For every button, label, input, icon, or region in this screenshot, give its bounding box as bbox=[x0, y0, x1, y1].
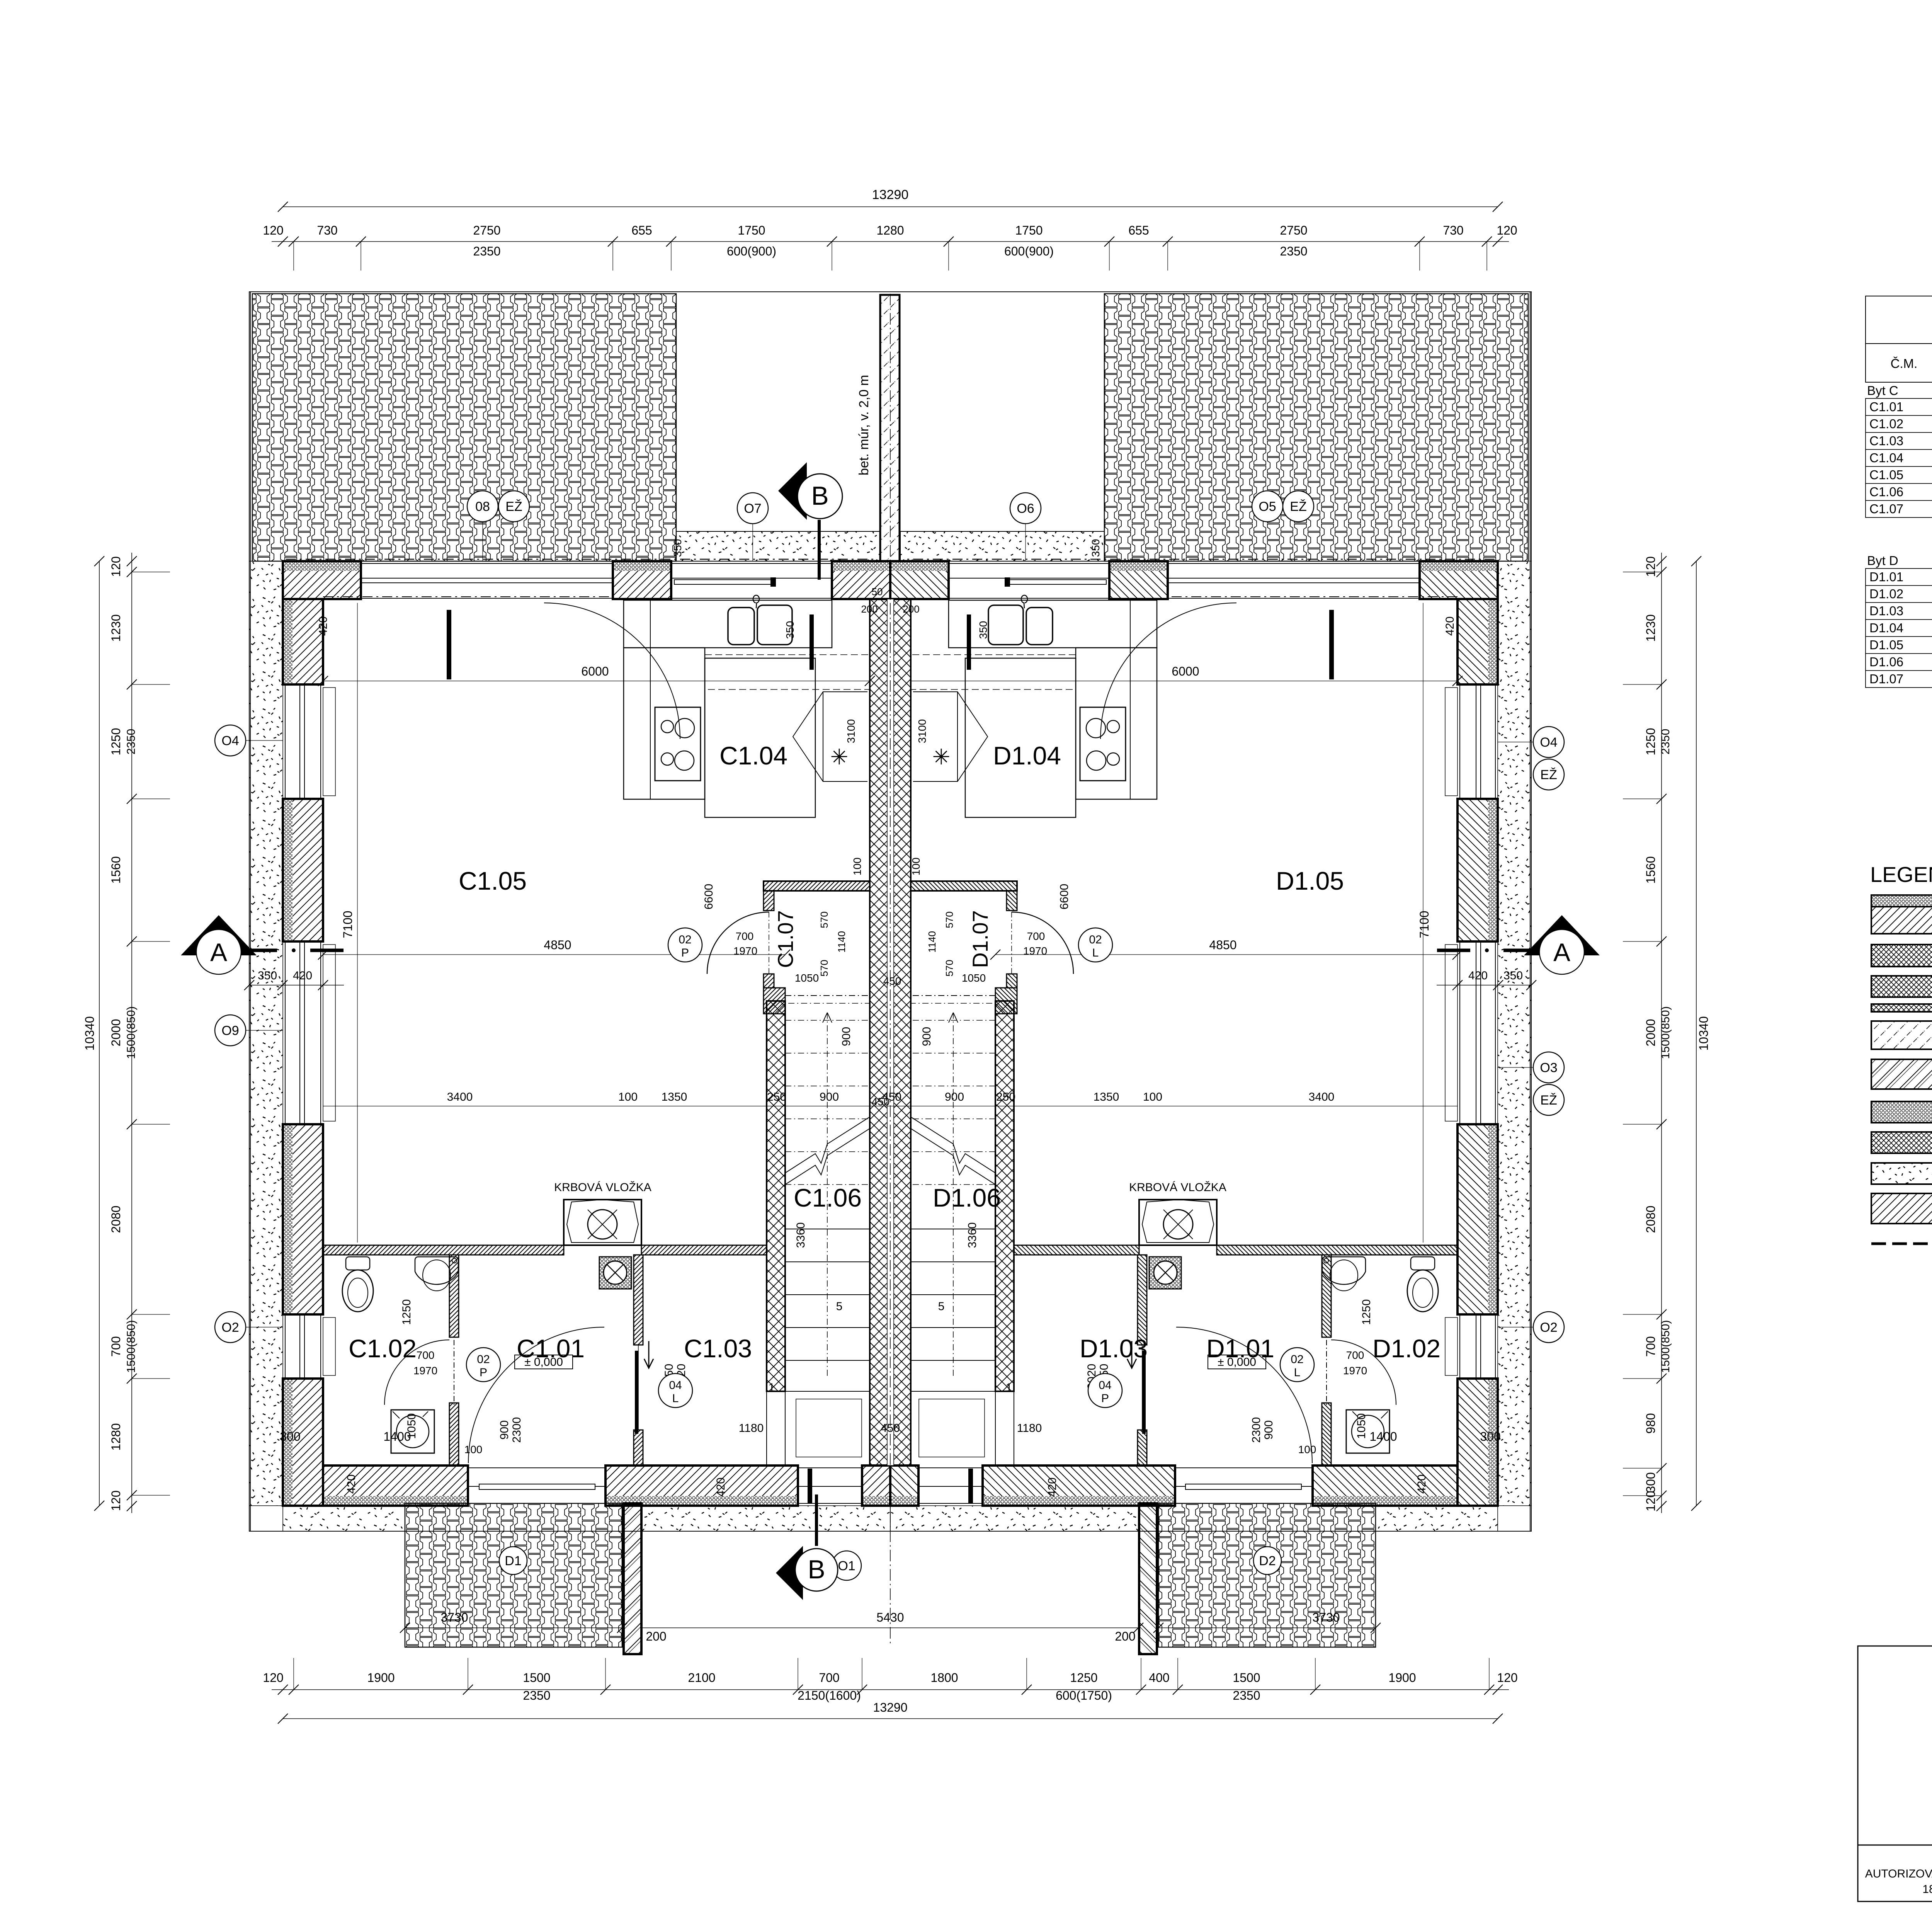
svg-text:D1.07: D1.07 bbox=[968, 910, 992, 968]
svg-text:420: 420 bbox=[1046, 1477, 1059, 1497]
svg-text:C1.03: C1.03 bbox=[1869, 434, 1903, 448]
svg-text:655: 655 bbox=[631, 223, 652, 237]
svg-text:1500: 1500 bbox=[523, 1671, 550, 1685]
svg-text:120: 120 bbox=[1644, 1491, 1658, 1511]
svg-text:C1.05: C1.05 bbox=[459, 866, 527, 895]
svg-text:100: 100 bbox=[851, 858, 863, 876]
svg-text:350: 350 bbox=[1090, 539, 1102, 557]
svg-text:700: 700 bbox=[736, 930, 754, 942]
svg-text:KRBOVÁ VLOŽKA: KRBOVÁ VLOŽKA bbox=[1129, 1181, 1226, 1194]
svg-text:1050: 1050 bbox=[795, 972, 819, 984]
svg-text:5: 5 bbox=[938, 1300, 945, 1313]
svg-text:10340: 10340 bbox=[1697, 1016, 1711, 1051]
svg-text:KRBOVÁ VLOŽKA: KRBOVÁ VLOŽKA bbox=[554, 1181, 651, 1194]
svg-text:1180: 1180 bbox=[1017, 1422, 1042, 1435]
svg-text:1750: 1750 bbox=[738, 223, 765, 237]
svg-text:B: B bbox=[808, 1555, 825, 1584]
svg-text:1970: 1970 bbox=[1343, 1365, 1367, 1377]
svg-text:600(900): 600(900) bbox=[1004, 244, 1054, 258]
svg-text:1800: 1800 bbox=[930, 1671, 958, 1685]
svg-text:C1.01: C1.01 bbox=[1869, 400, 1903, 414]
svg-text:1050: 1050 bbox=[962, 972, 986, 984]
svg-text:C1.06: C1.06 bbox=[794, 1183, 862, 1212]
svg-text:120: 120 bbox=[263, 1671, 283, 1685]
svg-text:1970: 1970 bbox=[413, 1365, 437, 1377]
svg-text:420: 420 bbox=[293, 969, 312, 982]
svg-text:3100: 3100 bbox=[845, 719, 857, 743]
svg-text:730: 730 bbox=[1443, 223, 1463, 237]
svg-text:D1.02: D1.02 bbox=[1869, 587, 1903, 601]
svg-text:700: 700 bbox=[1346, 1349, 1364, 1361]
svg-text:O9: O9 bbox=[221, 1023, 239, 1038]
svg-text:3400: 3400 bbox=[447, 1091, 473, 1103]
svg-text:120: 120 bbox=[1497, 223, 1517, 237]
svg-text:7100: 7100 bbox=[341, 911, 355, 938]
svg-text:D1: D1 bbox=[505, 1554, 521, 1568]
svg-text:1560: 1560 bbox=[1644, 856, 1658, 883]
svg-text:450: 450 bbox=[881, 1422, 900, 1435]
svg-text:D1.03: D1.03 bbox=[1869, 604, 1903, 618]
svg-text:300: 300 bbox=[1480, 1430, 1500, 1443]
svg-text:1900: 1900 bbox=[367, 1671, 395, 1685]
svg-text:D1.04: D1.04 bbox=[993, 741, 1061, 770]
svg-text:450: 450 bbox=[872, 1096, 890, 1108]
svg-text:02: 02 bbox=[1089, 933, 1102, 946]
svg-text:3730: 3730 bbox=[440, 1610, 468, 1624]
svg-text:100: 100 bbox=[1143, 1091, 1162, 1103]
svg-text:2080: 2080 bbox=[1644, 1205, 1658, 1233]
svg-text:EŽ: EŽ bbox=[505, 499, 522, 514]
svg-text:O4: O4 bbox=[221, 734, 239, 748]
svg-text:100: 100 bbox=[618, 1091, 638, 1103]
svg-text:08: 08 bbox=[475, 499, 490, 514]
svg-text:570: 570 bbox=[944, 960, 955, 976]
svg-text:1750: 1750 bbox=[1015, 223, 1043, 237]
svg-text:L: L bbox=[1092, 946, 1099, 959]
svg-text:450: 450 bbox=[883, 975, 901, 987]
svg-text:2350: 2350 bbox=[1233, 1689, 1260, 1702]
svg-text:700: 700 bbox=[1644, 1336, 1658, 1357]
svg-text:Byt D: Byt D bbox=[1867, 553, 1898, 568]
svg-text:2350: 2350 bbox=[125, 729, 138, 755]
svg-text:200: 200 bbox=[646, 1629, 666, 1643]
svg-text:300: 300 bbox=[280, 1430, 300, 1443]
svg-text:3100: 3100 bbox=[916, 719, 928, 743]
svg-text:3400: 3400 bbox=[1309, 1091, 1335, 1103]
svg-text:1140: 1140 bbox=[836, 931, 847, 953]
svg-text:250: 250 bbox=[996, 1091, 1015, 1103]
svg-text:D1.03: D1.03 bbox=[1080, 1334, 1148, 1363]
svg-text:5: 5 bbox=[836, 1300, 843, 1313]
svg-text:900: 900 bbox=[945, 1091, 964, 1103]
svg-text:420: 420 bbox=[317, 616, 330, 636]
svg-text:04: 04 bbox=[669, 1379, 682, 1392]
svg-text:120: 120 bbox=[109, 1490, 123, 1511]
svg-text:O5: O5 bbox=[1259, 499, 1276, 514]
svg-text:350: 350 bbox=[672, 539, 684, 557]
svg-text:LEGENDA MATERIÁLOV: LEGENDA MATERIÁLOV bbox=[1870, 862, 1932, 887]
svg-text:6000: 6000 bbox=[581, 664, 609, 678]
svg-text:420: 420 bbox=[1444, 616, 1456, 636]
svg-text:1: 1 bbox=[769, 1381, 775, 1394]
svg-text:04: 04 bbox=[1099, 1379, 1111, 1392]
svg-text:O3: O3 bbox=[1540, 1060, 1557, 1075]
svg-text:900: 900 bbox=[840, 1027, 853, 1046]
svg-text:1560: 1560 bbox=[109, 856, 123, 883]
svg-text:700: 700 bbox=[1027, 930, 1045, 942]
svg-text:1: 1 bbox=[1006, 1381, 1012, 1394]
svg-text:D1.05: D1.05 bbox=[1869, 638, 1903, 652]
svg-text:1050: 1050 bbox=[405, 1413, 418, 1439]
svg-text:1250: 1250 bbox=[1070, 1671, 1097, 1685]
svg-text:700: 700 bbox=[819, 1671, 839, 1685]
svg-text:2350: 2350 bbox=[1280, 244, 1307, 258]
svg-text:7100: 7100 bbox=[1417, 911, 1431, 938]
svg-text:3360: 3360 bbox=[966, 1222, 979, 1248]
svg-text:EŽ: EŽ bbox=[1290, 499, 1306, 514]
svg-text:D2: D2 bbox=[1259, 1554, 1276, 1568]
svg-text:350: 350 bbox=[258, 969, 277, 982]
svg-text:P: P bbox=[480, 1366, 487, 1379]
svg-text:1250: 1250 bbox=[1360, 1299, 1373, 1325]
svg-text:570: 570 bbox=[944, 911, 955, 928]
svg-text:100: 100 bbox=[1298, 1443, 1316, 1455]
svg-text:D1.02: D1.02 bbox=[1372, 1334, 1440, 1363]
svg-text:200: 200 bbox=[1115, 1629, 1135, 1643]
svg-text:120: 120 bbox=[263, 223, 283, 237]
svg-text:4850: 4850 bbox=[544, 938, 571, 952]
svg-text:655: 655 bbox=[1128, 223, 1149, 237]
svg-text:C1.02: C1.02 bbox=[349, 1334, 417, 1363]
svg-text:C1.07: C1.07 bbox=[773, 910, 798, 968]
svg-text:120: 120 bbox=[1497, 1671, 1517, 1685]
svg-text:A: A bbox=[1553, 938, 1570, 967]
svg-text:250: 250 bbox=[767, 1091, 786, 1103]
svg-text:A: A bbox=[210, 938, 227, 967]
svg-text:570: 570 bbox=[818, 960, 830, 976]
svg-text:1500(850): 1500(850) bbox=[1659, 1320, 1672, 1373]
svg-text:600(1750): 600(1750) bbox=[1056, 1689, 1112, 1702]
svg-text:1180: 1180 bbox=[739, 1422, 764, 1435]
svg-text:C1.06: C1.06 bbox=[1869, 485, 1903, 499]
svg-text:570: 570 bbox=[818, 911, 830, 928]
svg-text:bet. múr, v. 2,0 m: bet. múr, v. 2,0 m bbox=[857, 375, 871, 475]
svg-text:2000: 2000 bbox=[109, 1019, 123, 1046]
svg-text:980: 980 bbox=[1644, 1413, 1658, 1433]
svg-text:300: 300 bbox=[1644, 1472, 1658, 1493]
svg-text:2150(1600): 2150(1600) bbox=[798, 1689, 861, 1702]
svg-text:C1.05: C1.05 bbox=[1869, 468, 1903, 482]
svg-text:900: 900 bbox=[1262, 1420, 1275, 1440]
svg-text:1230: 1230 bbox=[109, 614, 123, 642]
svg-text:C1.04: C1.04 bbox=[1869, 451, 1903, 465]
svg-text:1230: 1230 bbox=[1644, 614, 1658, 642]
svg-text:1500(850): 1500(850) bbox=[125, 1320, 138, 1373]
svg-text:2750: 2750 bbox=[1280, 223, 1307, 237]
svg-text:Č.M.: Č.M. bbox=[1891, 356, 1918, 371]
svg-text:O7: O7 bbox=[744, 501, 761, 516]
svg-text:1350: 1350 bbox=[1094, 1091, 1119, 1103]
svg-text:1140: 1140 bbox=[926, 931, 938, 953]
svg-text:350: 350 bbox=[784, 621, 796, 639]
svg-text:EŽ: EŽ bbox=[1540, 1093, 1557, 1108]
svg-text:AUTORIZOVANÝ ARCHITEKT: AUTORIZOVANÝ ARCHITEKT bbox=[1865, 1867, 1932, 1880]
svg-text:1810 AA: 1810 AA bbox=[1922, 1883, 1932, 1896]
svg-text:2100: 2100 bbox=[688, 1671, 715, 1685]
svg-text:600(900): 600(900) bbox=[727, 244, 776, 258]
svg-text:± 0,000: ± 0,000 bbox=[1218, 1356, 1256, 1369]
svg-text:6000: 6000 bbox=[1172, 664, 1199, 678]
svg-text:1250: 1250 bbox=[1644, 728, 1658, 755]
svg-text:420: 420 bbox=[714, 1477, 727, 1497]
svg-text:700: 700 bbox=[109, 1336, 123, 1357]
svg-text:700: 700 bbox=[417, 1349, 435, 1361]
svg-text:2350: 2350 bbox=[523, 1689, 550, 1702]
svg-text:P: P bbox=[681, 946, 689, 959]
svg-text:420: 420 bbox=[1468, 969, 1488, 982]
svg-text:5430: 5430 bbox=[876, 1610, 904, 1624]
svg-text:350: 350 bbox=[977, 621, 989, 639]
svg-text:10340: 10340 bbox=[83, 1016, 97, 1051]
svg-text:13290: 13290 bbox=[873, 1700, 908, 1714]
svg-text:C1.04: C1.04 bbox=[719, 741, 787, 770]
svg-text:900: 900 bbox=[920, 1027, 933, 1046]
svg-text:2080: 2080 bbox=[109, 1205, 123, 1233]
svg-text:O6: O6 bbox=[1017, 501, 1034, 516]
svg-text:D1.06: D1.06 bbox=[1869, 655, 1903, 669]
svg-text:1500(850): 1500(850) bbox=[1659, 1006, 1672, 1059]
svg-text:4850: 4850 bbox=[1209, 938, 1236, 952]
svg-text:D1.06: D1.06 bbox=[933, 1183, 1001, 1212]
svg-text:1050: 1050 bbox=[1355, 1413, 1368, 1439]
svg-text:Byt C: Byt C bbox=[1867, 383, 1898, 398]
svg-text:O4: O4 bbox=[1540, 735, 1557, 750]
svg-text:C1.03: C1.03 bbox=[684, 1334, 752, 1363]
svg-text:2350: 2350 bbox=[1659, 729, 1672, 755]
svg-text:O2: O2 bbox=[221, 1320, 239, 1335]
svg-text:200: 200 bbox=[861, 603, 878, 615]
svg-text:1350: 1350 bbox=[662, 1091, 687, 1103]
svg-text:100: 100 bbox=[464, 1443, 483, 1455]
svg-text:C1.02: C1.02 bbox=[1869, 417, 1903, 431]
svg-text:6600: 6600 bbox=[702, 884, 715, 910]
svg-text:D1.07: D1.07 bbox=[1869, 672, 1903, 686]
svg-text:02: 02 bbox=[477, 1353, 490, 1366]
svg-text:1280: 1280 bbox=[109, 1423, 123, 1450]
svg-text:D1.05: D1.05 bbox=[1276, 866, 1344, 895]
svg-text:1500: 1500 bbox=[1233, 1671, 1260, 1685]
svg-text:50: 50 bbox=[872, 586, 883, 597]
svg-text:1900: 1900 bbox=[1388, 1671, 1416, 1685]
svg-text:1280: 1280 bbox=[876, 223, 904, 237]
svg-text:D1.01: D1.01 bbox=[1869, 570, 1903, 584]
svg-text:1970: 1970 bbox=[733, 945, 757, 957]
svg-text:200: 200 bbox=[903, 603, 919, 615]
svg-text:O1: O1 bbox=[838, 1559, 855, 1573]
svg-text:420: 420 bbox=[1415, 1474, 1428, 1494]
svg-text:6600: 6600 bbox=[1058, 884, 1071, 910]
svg-text:✳: ✳ bbox=[830, 745, 849, 769]
svg-text:2300: 2300 bbox=[1250, 1417, 1263, 1443]
svg-text:900: 900 bbox=[820, 1091, 839, 1103]
svg-text:350: 350 bbox=[1503, 969, 1523, 982]
svg-text:13290: 13290 bbox=[872, 187, 909, 202]
svg-text:1500(850): 1500(850) bbox=[125, 1006, 138, 1059]
svg-text:1250: 1250 bbox=[109, 728, 123, 755]
svg-text:2350: 2350 bbox=[473, 244, 500, 258]
svg-text:120: 120 bbox=[1644, 556, 1658, 577]
svg-text:730: 730 bbox=[317, 223, 337, 237]
svg-text:1970: 1970 bbox=[1023, 945, 1047, 957]
svg-text:P: P bbox=[1101, 1392, 1109, 1405]
svg-text:B: B bbox=[811, 481, 828, 511]
svg-text:1400: 1400 bbox=[1369, 1430, 1397, 1443]
svg-text:02: 02 bbox=[679, 933, 691, 946]
svg-text:02: 02 bbox=[1291, 1353, 1303, 1366]
svg-text:400: 400 bbox=[1149, 1671, 1169, 1685]
svg-text:2300: 2300 bbox=[510, 1417, 523, 1443]
svg-text:3730: 3730 bbox=[1312, 1610, 1340, 1624]
svg-text:± 0,000: ± 0,000 bbox=[524, 1356, 563, 1369]
svg-text:2000: 2000 bbox=[1644, 1019, 1658, 1046]
svg-text:L: L bbox=[1294, 1366, 1301, 1379]
svg-text:3360: 3360 bbox=[794, 1222, 807, 1248]
svg-text:D1.04: D1.04 bbox=[1869, 621, 1903, 635]
svg-text:L: L bbox=[672, 1392, 679, 1405]
svg-text:1250: 1250 bbox=[400, 1299, 413, 1325]
svg-text:EŽ: EŽ bbox=[1540, 768, 1557, 782]
svg-text:2750: 2750 bbox=[473, 223, 500, 237]
svg-text:100: 100 bbox=[910, 858, 922, 876]
svg-text:120: 120 bbox=[109, 556, 123, 577]
svg-text:✳: ✳ bbox=[932, 745, 951, 769]
svg-text:900: 900 bbox=[498, 1420, 511, 1440]
svg-text:C1.07: C1.07 bbox=[1869, 502, 1903, 516]
svg-text:O2: O2 bbox=[1540, 1320, 1557, 1335]
svg-text:420: 420 bbox=[345, 1474, 358, 1494]
